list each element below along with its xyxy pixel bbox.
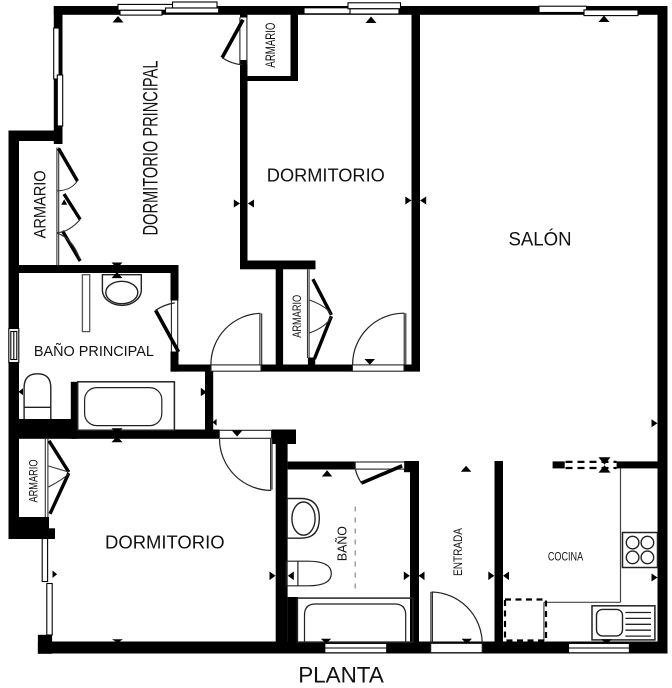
- svg-text:DORMITORIO: DORMITORIO: [267, 166, 385, 186]
- svg-text:COCINA: COCINA: [548, 552, 584, 564]
- svg-text:DORMITORIO: DORMITORIO: [105, 533, 225, 553]
- svg-text:DORMITORIO PRINCIPAL: DORMITORIO PRINCIPAL: [140, 61, 163, 236]
- svg-text:ENTRADA: ENTRADA: [451, 528, 465, 576]
- svg-text:ARMARIO: ARMARIO: [290, 295, 304, 338]
- svg-text:BAÑO: BAÑO: [335, 526, 350, 561]
- svg-text:ARMARIO: ARMARIO: [27, 460, 41, 503]
- svg-text:SALÓN: SALÓN: [509, 229, 572, 251]
- svg-text:PLANTA: PLANTA: [298, 663, 384, 688]
- svg-text:ARMARIO: ARMARIO: [263, 23, 278, 68]
- svg-text:ARMARIO: ARMARIO: [31, 170, 50, 238]
- svg-text:BAÑO PRINCIPAL: BAÑO PRINCIPAL: [34, 343, 154, 360]
